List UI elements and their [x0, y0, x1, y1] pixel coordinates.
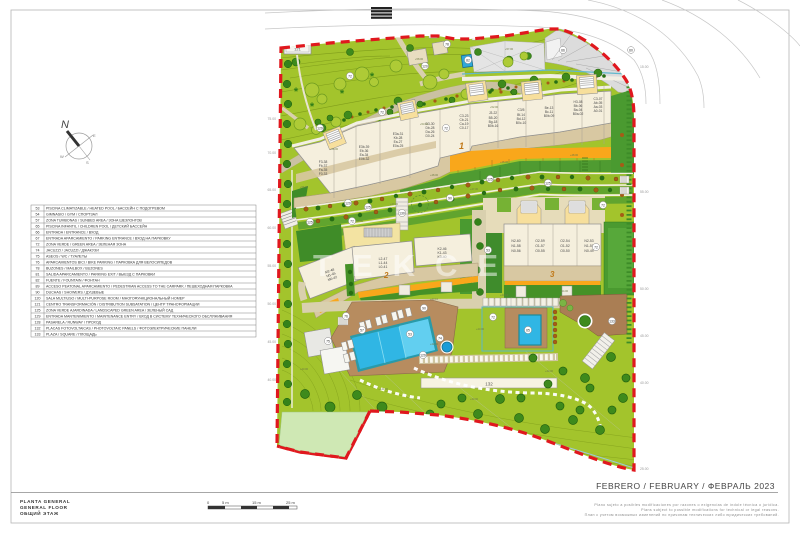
svg-text:O2-54: O2-54: [560, 239, 570, 243]
svg-text:+43.10: +43.10: [500, 293, 509, 297]
svg-text:DUCHAS / SHOWERS / ДУШЕВЫЕ: DUCHAS / SHOWERS / ДУШЕВЫЕ: [46, 291, 105, 295]
svg-text:CENTRO TRANSFORMACIÓN / DISTRI: CENTRO TRANSFORMACIÓN / DISTRIBUTION SUB…: [46, 302, 200, 307]
svg-text:76: 76: [344, 314, 348, 318]
svg-text:+44.00: +44.00: [545, 369, 554, 373]
svg-text:125: 125: [545, 181, 551, 185]
svg-text:ENTRADA / ENTRANCE / ВХОД: ENTRADA / ENTRANCE / ВХОД: [46, 231, 99, 235]
svg-text:ОБЩИЙ ЭТАЖ: ОБЩИЙ ЭТАЖ: [20, 509, 59, 516]
svg-text:+56.00: +56.00: [300, 185, 309, 189]
svg-text:PLANTA GENERAL: PLANTA GENERAL: [20, 499, 70, 504]
svg-text:133: 133: [609, 319, 615, 323]
svg-text:125: 125: [365, 205, 371, 209]
svg-text:128: 128: [35, 321, 41, 325]
svg-text:O0-50: O0-50: [560, 249, 570, 253]
svg-text:+44.00: +44.00: [560, 289, 569, 293]
svg-text:+48.00: +48.00: [500, 160, 509, 164]
svg-text:54: 54: [36, 213, 40, 217]
svg-text:90: 90: [448, 196, 452, 200]
svg-text:76: 76: [36, 261, 40, 265]
svg-text:57: 57: [36, 219, 40, 223]
svg-text:ENTRADA MANTENIMIENTO / MAINTE: ENTRADA MANTENIMIENTO / MAINTENANCE ENTR…: [46, 315, 233, 319]
svg-text:+43.10: +43.10: [430, 297, 439, 301]
svg-text:Plano sujeto a posibles modifi: Plano sujeto a posibles modificaciones p…: [594, 503, 779, 507]
svg-text:70.00: 70.00: [268, 151, 277, 155]
svg-text:66: 66: [561, 48, 565, 52]
svg-text:+58.00: +58.00: [415, 57, 424, 61]
svg-text:PISCINA INFANTIL / CHILDREN PO: PISCINA INFANTIL / CHILDREN POOL / ДЕТСК…: [46, 225, 148, 229]
svg-text:53: 53: [36, 207, 40, 211]
svg-text:82: 82: [36, 279, 40, 283]
svg-text:PLAZA / SQUARE / ПЛОЩАДЬ: PLAZA / SQUARE / ПЛОЩАДЬ: [46, 333, 97, 337]
svg-text:W: W: [60, 154, 64, 159]
svg-text:60: 60: [629, 48, 633, 52]
svg-text:TEKCE: TEKCE: [313, 248, 518, 283]
svg-text:B0b-09: B0b-09: [544, 114, 555, 118]
svg-text:+42.00: +42.00: [430, 342, 439, 346]
svg-text:50.00: 50.00: [640, 287, 649, 291]
svg-text:120: 120: [35, 297, 41, 301]
svg-text:74: 74: [36, 249, 40, 253]
svg-text:15.00: 15.00: [640, 65, 649, 69]
svg-text:40.00: 40.00: [640, 381, 649, 385]
svg-text:60.00: 60.00: [268, 226, 277, 230]
svg-text:72: 72: [350, 219, 354, 223]
svg-text:133: 133: [35, 333, 41, 337]
svg-text:План с учетом возможных измене: План с учетом возможных изменений по при…: [585, 513, 779, 517]
svg-text:57: 57: [360, 328, 364, 332]
svg-text:53: 53: [408, 332, 412, 336]
svg-text:E0b-32: E0b-32: [359, 157, 370, 161]
svg-text:ENTRADA APARCAMIENTO / PARKING: ENTRADA APARCAMIENTO / PARKING ENTRANCE …: [46, 237, 171, 241]
svg-text:PISCINA CLIMATIZABLE / HEATED: PISCINA CLIMATIZABLE / HEATED POOL / БАС…: [46, 207, 165, 211]
svg-text:120: 120: [422, 64, 428, 68]
svg-text:5 m: 5 m: [222, 500, 229, 505]
svg-text:N: N: [61, 119, 69, 131]
svg-text:GENERAL FLOOR: GENERAL FLOOR: [20, 505, 68, 510]
svg-text:40.00: 40.00: [268, 378, 277, 382]
svg-text:65: 65: [526, 328, 530, 332]
svg-text:82: 82: [466, 58, 470, 62]
svg-text:ACCESO PEATONAL APARCAMIENTO /: ACCESO PEATONAL APARCAMIENTO / PEDESTRIA…: [46, 285, 233, 289]
svg-text:N0-49: N0-49: [584, 249, 593, 253]
svg-text:B0c-10: B0c-10: [516, 121, 527, 125]
svg-text:FUENTE / FOUNTAIN / ФОНТАН: FUENTE / FOUNTAIN / ФОНТАН: [46, 279, 100, 283]
svg-text:+57.00: +57.00: [505, 47, 514, 51]
svg-text:78: 78: [36, 267, 40, 271]
svg-text:125: 125: [487, 177, 493, 181]
svg-text:O1-57: O1-57: [535, 244, 545, 248]
svg-text:75.00: 75.00: [268, 117, 277, 121]
svg-text:72: 72: [36, 243, 40, 247]
svg-text:F0-33: F0-33: [319, 172, 328, 176]
svg-text:SALIDA APARCAMIENTO / PARKING: SALIDA APARCAMIENTO / PARKING EXIT / ВЫЕ…: [46, 273, 155, 277]
svg-text:72: 72: [444, 126, 448, 130]
svg-text:+53.00: +53.00: [420, 122, 429, 126]
svg-text:72: 72: [348, 74, 352, 78]
svg-text:15 m: 15 m: [252, 500, 262, 505]
svg-text:APARCAMIENTOS BICI / BIKE PARK: APARCAMIENTOS BICI / BIKE PARKING / ПАРК…: [46, 261, 173, 265]
svg-text:O0-55: O0-55: [535, 249, 545, 253]
svg-text:ZONA VERDE / GREEN AREA / ЗЕЛ: ZONA VERDE / GREEN AREA / ЗЕЛЕНАЯ ЗОНА: [46, 243, 127, 247]
svg-text:O1-52: O1-52: [560, 244, 570, 248]
svg-text:65: 65: [36, 225, 40, 229]
svg-text:E: E: [93, 133, 96, 138]
svg-text:+58.00: +58.00: [330, 147, 339, 151]
svg-text:45.00: 45.00: [268, 340, 277, 344]
svg-text:ASEOS / WC / ТУАЛЕТЫ: ASEOS / WC / ТУАЛЕТЫ: [46, 255, 87, 259]
svg-text:81: 81: [36, 273, 40, 277]
svg-text:50.00: 50.00: [268, 302, 277, 306]
svg-text:25.00: 25.00: [640, 467, 649, 471]
svg-text:ZONA VERDE AJARDINADA / LANDS: ZONA VERDE AJARDINADA / LANDSCAPED GREEN…: [46, 309, 174, 313]
svg-text:+52.00: +52.00: [490, 105, 499, 109]
svg-text:B0a-02: B0a-02: [573, 112, 584, 116]
svg-text:SALA MULTIUSO / MULTI-PURPOSE: SALA MULTIUSO / MULTI-PURPOSE ROOM / МНО…: [46, 297, 185, 301]
svg-text:C3/5: C3/5: [518, 108, 525, 112]
svg-text:PLACAS FOTOVOLTAICAS / PHOTOVO: PLACAS FOTOVOLTAICAS / PHOTOVOLTAIC PANE…: [46, 327, 197, 331]
svg-text:90: 90: [36, 291, 40, 295]
svg-text:130: 130: [399, 211, 405, 215]
svg-text:+47.30: +47.30: [470, 187, 479, 191]
svg-text:+46.00: +46.00: [355, 219, 364, 223]
svg-text:+47.30: +47.30: [390, 202, 399, 206]
svg-text:74: 74: [438, 336, 442, 340]
svg-text:125: 125: [307, 220, 313, 224]
svg-text:O2-59: O2-59: [535, 239, 545, 243]
svg-text:+43.00: +43.00: [476, 327, 485, 331]
svg-text:B0b-16: B0b-16: [488, 124, 499, 128]
svg-text:S: S: [86, 160, 89, 165]
svg-text:BUZONES / MAILBOX / BUZONES: BUZONES / MAILBOX / BUZONES: [46, 267, 103, 271]
svg-text:JACUZZI / JACUZZI / ДЖАКУЗИ: JACUZZI / JACUZZI / ДЖАКУЗИ: [46, 249, 99, 253]
svg-text:78: 78: [445, 42, 449, 46]
svg-text:*: *: [294, 86, 299, 98]
svg-text:+48.00: +48.00: [570, 153, 579, 157]
svg-text:75: 75: [326, 339, 330, 343]
svg-text:FEBRERO / FEBRUARY / ФЕВРАЛЬ: FEBRERO / FEBRUARY / ФЕВРАЛЬ 2023: [596, 481, 775, 491]
svg-text:125: 125: [35, 309, 41, 313]
svg-text:67: 67: [36, 237, 40, 241]
svg-text:132: 132: [485, 382, 493, 387]
svg-text:55.00: 55.00: [640, 190, 649, 194]
svg-text:1: 1: [459, 141, 464, 151]
svg-text:J3-22: J3-22: [489, 111, 497, 115]
svg-text:N2-60: N2-60: [511, 239, 520, 243]
svg-text:75: 75: [36, 255, 40, 259]
svg-text:129: 129: [317, 126, 323, 130]
svg-text:72: 72: [601, 203, 605, 207]
svg-text:PASARELA / RUNWAY / ПРОХОД: PASARELA / RUNWAY / ПРОХОД: [46, 321, 102, 325]
svg-text:129: 129: [420, 353, 426, 357]
svg-text:55.00: 55.00: [268, 264, 277, 268]
svg-text:129: 129: [345, 201, 351, 205]
svg-text:+41.00: +41.00: [380, 387, 389, 391]
svg-text:65.00: 65.00: [268, 188, 277, 192]
svg-text:+48.00: +48.00: [430, 173, 439, 177]
svg-text:25 m: 25 m: [286, 500, 296, 505]
svg-text:+43.00: +43.00: [300, 367, 309, 371]
svg-text:ZONA TUMBONAS / SUNBED AREA /: ZONA TUMBONAS / SUNBED AREA / ЗОНА ШЕЗЛО…: [46, 219, 142, 223]
svg-text:90: 90: [422, 306, 426, 310]
svg-text:89: 89: [36, 285, 40, 289]
svg-text:*: *: [310, 101, 315, 113]
svg-text:72: 72: [491, 315, 495, 319]
svg-text:121: 121: [35, 303, 41, 307]
svg-text:A0-01: A0-01: [594, 109, 603, 113]
svg-text:45.00: 45.00: [640, 334, 649, 338]
svg-text:D0-24: D0-24: [426, 134, 435, 138]
svg-text:3: 3: [550, 270, 555, 279]
svg-text:E0a-25: E0a-25: [393, 144, 404, 148]
svg-text:72: 72: [594, 245, 598, 249]
svg-text:GIMNASIO / GYM / СПОРТЗАЛ: GIMNASIO / GYM / СПОРТЗАЛ: [46, 213, 98, 217]
svg-text:Plans subject to possible modi: Plans subject to possible modifications …: [641, 508, 779, 512]
svg-text:72: 72: [380, 110, 384, 114]
svg-text:129: 129: [35, 315, 41, 319]
svg-text:132: 132: [35, 327, 41, 331]
svg-text:66: 66: [36, 231, 40, 235]
svg-text:N2-53: N2-53: [584, 239, 593, 243]
svg-text:C0-17: C0-17: [460, 126, 469, 130]
svg-text:+40.00: +40.00: [470, 397, 479, 401]
